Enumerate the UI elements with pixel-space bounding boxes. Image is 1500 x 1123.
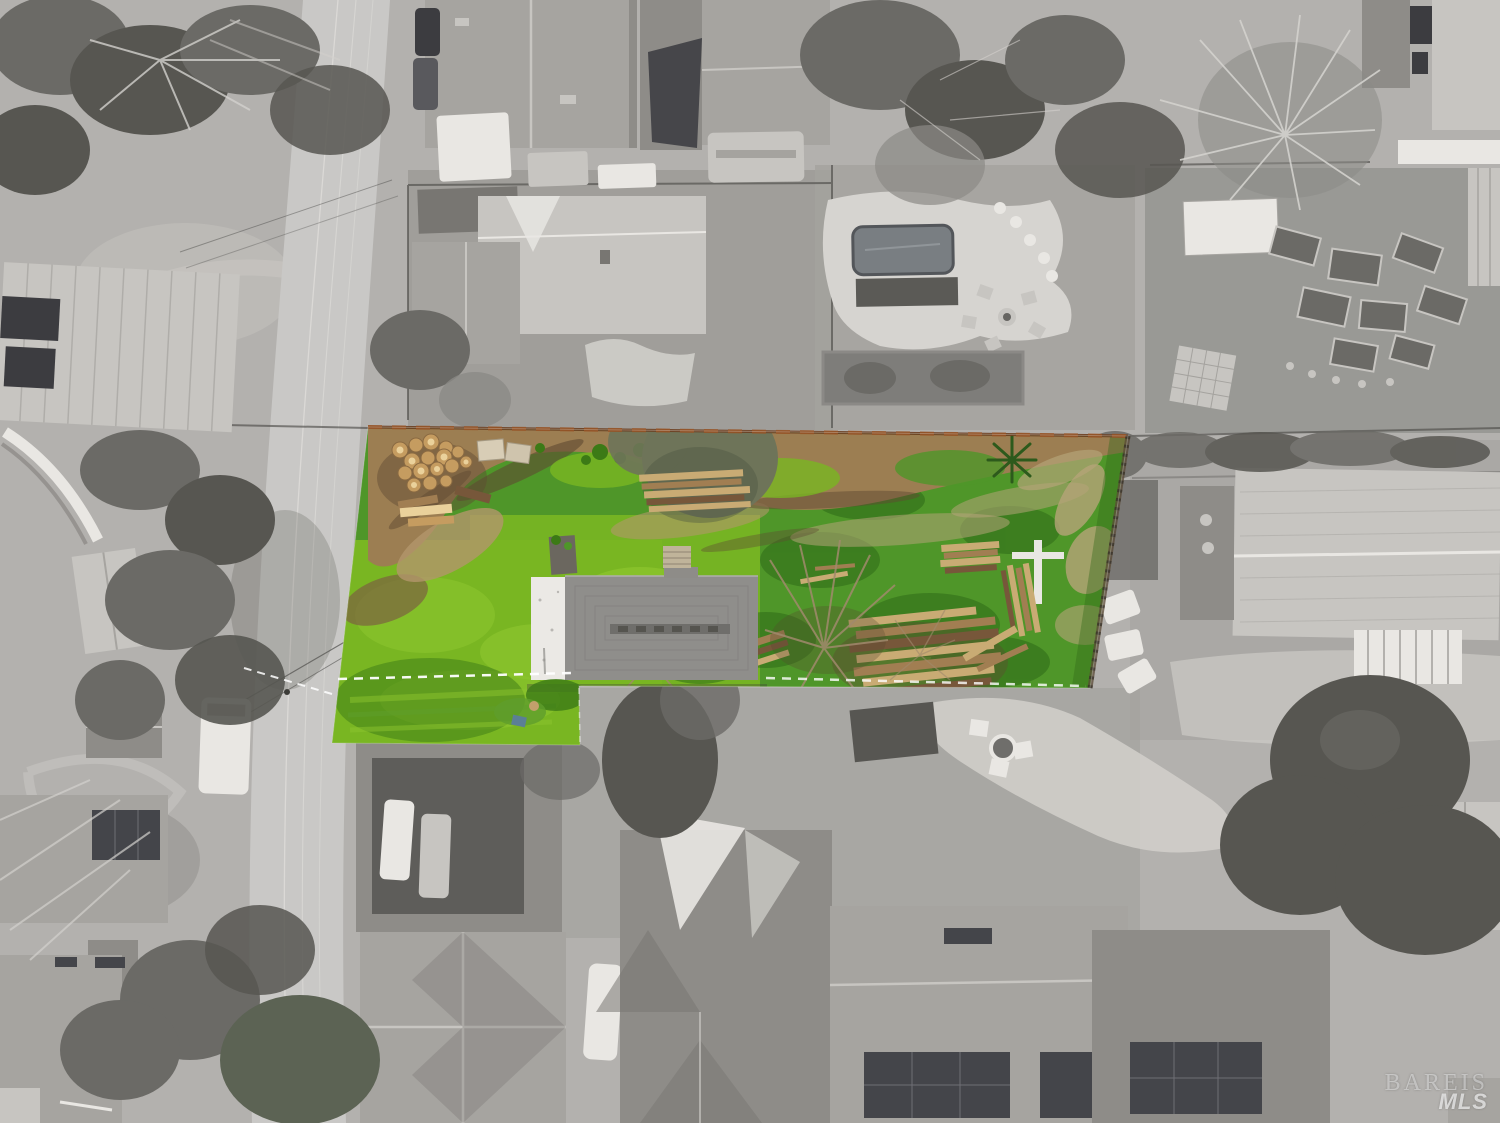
house-bottom-right <box>1092 930 1330 1123</box>
house-shade-sails <box>596 812 832 1123</box>
chimney <box>600 250 610 264</box>
solar-array <box>92 810 160 860</box>
tarp-on-roof <box>648 38 702 148</box>
boat-trailer <box>436 112 511 182</box>
hot-tub <box>991 736 1015 760</box>
green-tinted-tree <box>220 995 380 1123</box>
car <box>413 58 438 110</box>
trailer <box>527 151 588 187</box>
debris <box>529 701 539 711</box>
white-board <box>1034 540 1042 604</box>
aerial-photo-canvas <box>0 0 1500 1123</box>
aerial-photo: BAREIS MLS <box>0 0 1500 1123</box>
porch-steps <box>663 546 691 568</box>
car <box>419 814 452 899</box>
chimney <box>549 535 578 575</box>
porch-roof <box>664 567 698 578</box>
walkway <box>1398 140 1500 164</box>
awning <box>598 163 657 189</box>
planting-bed <box>856 277 958 307</box>
house-top-center <box>640 0 830 150</box>
white-roof-section <box>531 577 565 680</box>
dark-shed <box>850 702 939 762</box>
house-solar-center <box>830 906 1130 1123</box>
house-bottom-center-left <box>360 932 566 1123</box>
lattice-panel <box>1169 346 1236 411</box>
car <box>415 8 440 56</box>
solar-array <box>944 928 992 944</box>
white-shed <box>1183 198 1279 255</box>
car <box>379 799 415 881</box>
garage-roof <box>1468 168 1500 286</box>
metal-roof-house <box>0 262 240 432</box>
